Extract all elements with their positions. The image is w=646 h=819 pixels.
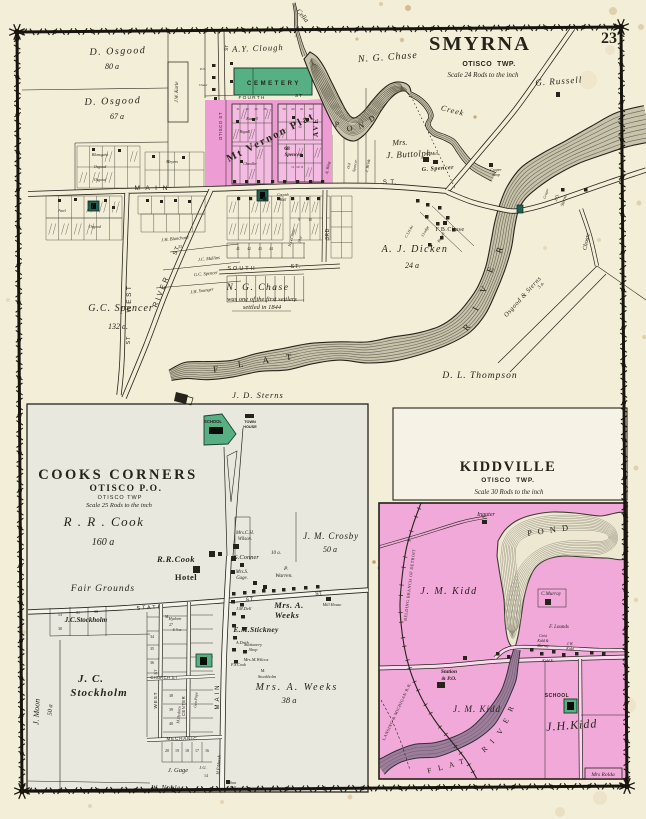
svg-text:50 a: 50 a <box>323 545 337 554</box>
svg-text:J.W. Karle: J.W. Karle <box>175 81 180 103</box>
svg-text:132 a.: 132 a. <box>108 322 128 331</box>
svg-text:J.W.: J.W. <box>567 642 574 646</box>
svg-text:OTISCO P.O.: OTISCO P.O. <box>90 484 163 494</box>
svg-text:Mrs. A. Weeks: Mrs. A. Weeks <box>255 682 339 693</box>
svg-text:50 a: 50 a <box>47 704 55 716</box>
svg-text:Stockholm: Stockholm <box>70 687 127 699</box>
svg-text:30: 30 <box>58 626 62 631</box>
svg-text:P.: P. <box>283 566 288 572</box>
svg-text:160 a: 160 a <box>92 537 115 548</box>
svg-text:Cooper: Cooper <box>490 168 502 172</box>
svg-text:Stockholm: Stockholm <box>258 674 276 679</box>
svg-text:Station: Station <box>441 669 457 675</box>
svg-text:A.Drith: A.Drith <box>235 640 249 645</box>
svg-text:Parel: Parel <box>57 209 66 213</box>
svg-text:Shop: Shop <box>249 647 259 652</box>
svg-text:J.G.: J.G. <box>199 765 207 770</box>
svg-text:SCHOOL: SCHOOL <box>545 693 569 699</box>
svg-text:Mrs Rolda: Mrs Rolda <box>590 772 615 778</box>
svg-text:S T.: S T. <box>383 180 397 186</box>
svg-text:was one of the first settlers: was one of the first settlers <box>227 296 297 303</box>
svg-text:6 ½ a: 6 ½ a <box>173 628 182 632</box>
svg-text:ST: ST <box>224 45 230 51</box>
svg-text:OTISCO TWP.: OTISCO TWP. <box>481 477 535 484</box>
svg-text:24 a: 24 a <box>405 261 419 270</box>
svg-text:Mrs.: Mrs. <box>391 138 407 148</box>
svg-text:40: 40 <box>169 721 173 726</box>
svg-text:Mrs.M.Wilcox: Mrs.M.Wilcox <box>243 657 269 662</box>
svg-text:Weeks: Weeks <box>275 610 300 620</box>
svg-text:ST.: ST. <box>291 264 302 270</box>
svg-text:Bignell: Bignell <box>240 130 250 134</box>
svg-text:D. L. Thompson: D. L. Thompson <box>441 371 517 381</box>
svg-text:31: 31 <box>236 107 240 111</box>
svg-text:10 a.: 10 a. <box>271 551 281 556</box>
svg-text:Spencer: Spencer <box>285 153 302 158</box>
svg-text:J. D. Sterns: J. D. Sterns <box>232 390 284 400</box>
svg-text:Hotel: Hotel <box>175 572 197 582</box>
svg-text:J. Moon: J. Moon <box>31 699 41 726</box>
svg-text:M.: M. <box>260 668 266 673</box>
svg-text:Osgood: Osgood <box>89 225 101 229</box>
svg-text:A.Y. Clough: A.Y. Clough <box>231 42 284 54</box>
svg-text:MAIN: MAIN <box>215 683 221 710</box>
svg-text:OTISCO ST: OTISCO ST <box>218 112 223 140</box>
svg-text:J.M.Dell: J.M.Dell <box>236 606 252 611</box>
svg-text:11 10 9: 11 10 9 <box>291 165 303 169</box>
svg-text:SOUTH: SOUTH <box>227 266 256 272</box>
svg-text:38: 38 <box>169 693 173 698</box>
svg-text:COOKS CORNERS: COOKS CORNERS <box>38 467 197 483</box>
svg-text:TOWN: TOWN <box>244 420 256 424</box>
svg-text:Mill House: Mill House <box>322 602 342 607</box>
svg-text:39: 39 <box>169 707 173 712</box>
svg-text:Shop: Shop <box>492 173 500 177</box>
svg-text:D. Osgood: D. Osgood <box>88 45 146 58</box>
svg-text:F. Lounds: F. Lounds <box>548 625 569 630</box>
svg-text:20: 20 <box>165 748 169 753</box>
svg-text:3RD: 3RD <box>325 228 331 240</box>
svg-text:38 a: 38 a <box>281 695 297 705</box>
svg-text:G.Conner: G.Conner <box>233 554 259 561</box>
svg-text:27: 27 <box>169 622 173 627</box>
svg-text:Kidd: Kidd <box>565 647 573 651</box>
svg-text:Saw: Saw <box>230 781 237 785</box>
svg-text:36: 36 <box>150 660 154 665</box>
svg-text:29: 29 <box>254 107 258 111</box>
svg-text:Chase: Chase <box>199 83 208 87</box>
svg-text:62: 62 <box>309 107 313 111</box>
svg-text:MECHANIC: MECHANIC <box>167 736 198 741</box>
svg-text:Murray: Murray <box>536 644 549 648</box>
svg-text:Russell: Russell <box>245 116 258 121</box>
svg-text:16: 16 <box>205 748 209 753</box>
svg-text:33: 33 <box>178 244 182 249</box>
svg-text:J. M. Crosby: J. M. Crosby <box>303 531 359 541</box>
svg-text:Scale 30 Rods to the inch: Scale 30 Rods to the inch <box>475 489 544 496</box>
svg-text:19: 19 <box>175 748 179 753</box>
svg-text:OTISCO TWP: OTISCO TWP <box>98 495 143 501</box>
svg-text:Chandler: Chandler <box>243 162 257 166</box>
svg-text:J. Gage: J. Gage <box>168 767 188 774</box>
svg-text:F.S.Cook: F.S.Cook <box>230 662 246 667</box>
svg-text:WEST: WEST <box>153 692 158 709</box>
svg-text:60: 60 <box>291 107 295 111</box>
svg-text:P.O.: P.O. <box>199 67 206 71</box>
svg-text:61: 61 <box>300 107 304 111</box>
svg-text:31: 31 <box>76 610 80 615</box>
svg-text:N. G. Chase: N. G. Chase <box>226 283 290 293</box>
svg-text:KIDDVILLE: KIDDVILLE <box>460 459 557 475</box>
svg-text:CHURCH ST: CHURCH ST <box>150 675 178 680</box>
svg-text:28: 28 <box>263 107 267 111</box>
svg-text:R.R.Cook: R.R.Cook <box>156 554 195 564</box>
svg-text:SMYRNA: SMYRNA <box>429 33 531 55</box>
svg-text:R . R . Cook: R . R . Cook <box>63 514 145 529</box>
svg-text:Osgood: Osgood <box>94 164 107 169</box>
svg-text:C.Murray: C.Murray <box>541 592 562 597</box>
svg-text:Cornish: Cornish <box>277 193 289 197</box>
svg-text:14: 14 <box>204 773 208 778</box>
svg-text:SCHOOL: SCHOOL <box>204 419 222 424</box>
svg-text:Inguter: Inguter <box>476 512 495 518</box>
svg-text:settled in 1844: settled in 1844 <box>243 304 282 311</box>
svg-text:9: 9 <box>298 218 300 222</box>
svg-text:34: 34 <box>150 634 154 639</box>
svg-text:Meyers: Meyers <box>165 159 178 164</box>
svg-text:ST: ST <box>153 669 158 675</box>
svg-text:ST: ST <box>295 93 303 99</box>
svg-text:Fair Grounds: Fair Grounds <box>70 584 135 594</box>
svg-text:18: 18 <box>185 748 189 753</box>
svg-text:35: 35 <box>150 646 154 651</box>
svg-text:80 a: 80 a <box>105 62 119 71</box>
svg-text:17: 17 <box>195 748 199 753</box>
svg-text:68: 68 <box>284 146 290 152</box>
svg-text:Scale 25 Rods to the inch: Scale 25 Rods to the inch <box>86 502 152 509</box>
svg-text:A. J. Dicken: A. J. Dicken <box>381 244 449 255</box>
svg-text:Mrs. A.: Mrs. A. <box>273 600 303 610</box>
svg-text:Scale 24 Rods to the inch: Scale 24 Rods to the inch <box>448 71 519 79</box>
svg-text:CEMETERY: CEMETERY <box>247 81 301 87</box>
svg-text:J. M. Kidd: J. M. Kidd <box>453 704 501 714</box>
svg-text:Warren.: Warren. <box>275 573 292 579</box>
svg-text:Mrs.C.H.: Mrs.C.H. <box>235 531 254 536</box>
svg-text:Kidd E.: Kidd E. <box>541 659 554 663</box>
svg-text:E.M.Stickney: E.M.Stickney <box>232 625 279 634</box>
svg-text:F.B.Chase: F.B.Chase <box>435 227 464 233</box>
svg-text:Grist: Grist <box>539 634 548 638</box>
svg-text:30: 30 <box>94 609 98 614</box>
svg-text:G.C. Spencer: G.C. Spencer <box>88 303 154 314</box>
svg-text:CENTER: CENTER <box>181 696 186 716</box>
svg-text:J. M. Kidd: J. M. Kidd <box>420 586 477 597</box>
svg-text:HOUSE: HOUSE <box>243 425 257 429</box>
svg-text:& P.O.: & P.O. <box>441 676 456 682</box>
svg-text:Kidd &: Kidd & <box>536 639 548 643</box>
svg-text:M A I N: M A I N <box>135 185 170 192</box>
svg-text:D. Osgood: D. Osgood <box>83 95 141 108</box>
svg-text:J.C.Stockholm: J.C.Stockholm <box>64 616 108 624</box>
svg-text:10: 10 <box>308 218 312 222</box>
svg-text:53: 53 <box>58 612 62 617</box>
svg-text:Gage.: Gage. <box>236 576 248 581</box>
svg-text:ST.: ST. <box>315 591 323 597</box>
svg-text:67 a: 67 a <box>110 112 124 121</box>
svg-text:OTISCO TWP.: OTISCO TWP. <box>462 61 515 68</box>
svg-text:J. C.: J. C. <box>77 673 104 685</box>
svg-text:ST: ST <box>126 335 132 344</box>
svg-text:23: 23 <box>601 30 617 47</box>
svg-text:Mrs.S.: Mrs.S. <box>235 570 249 575</box>
svg-text:ST: ST <box>246 597 255 604</box>
svg-text:52: 52 <box>298 125 302 129</box>
svg-text:30: 30 <box>245 107 249 111</box>
svg-text:Hydorn: Hydorn <box>168 616 182 621</box>
svg-text:59: 59 <box>282 107 286 111</box>
